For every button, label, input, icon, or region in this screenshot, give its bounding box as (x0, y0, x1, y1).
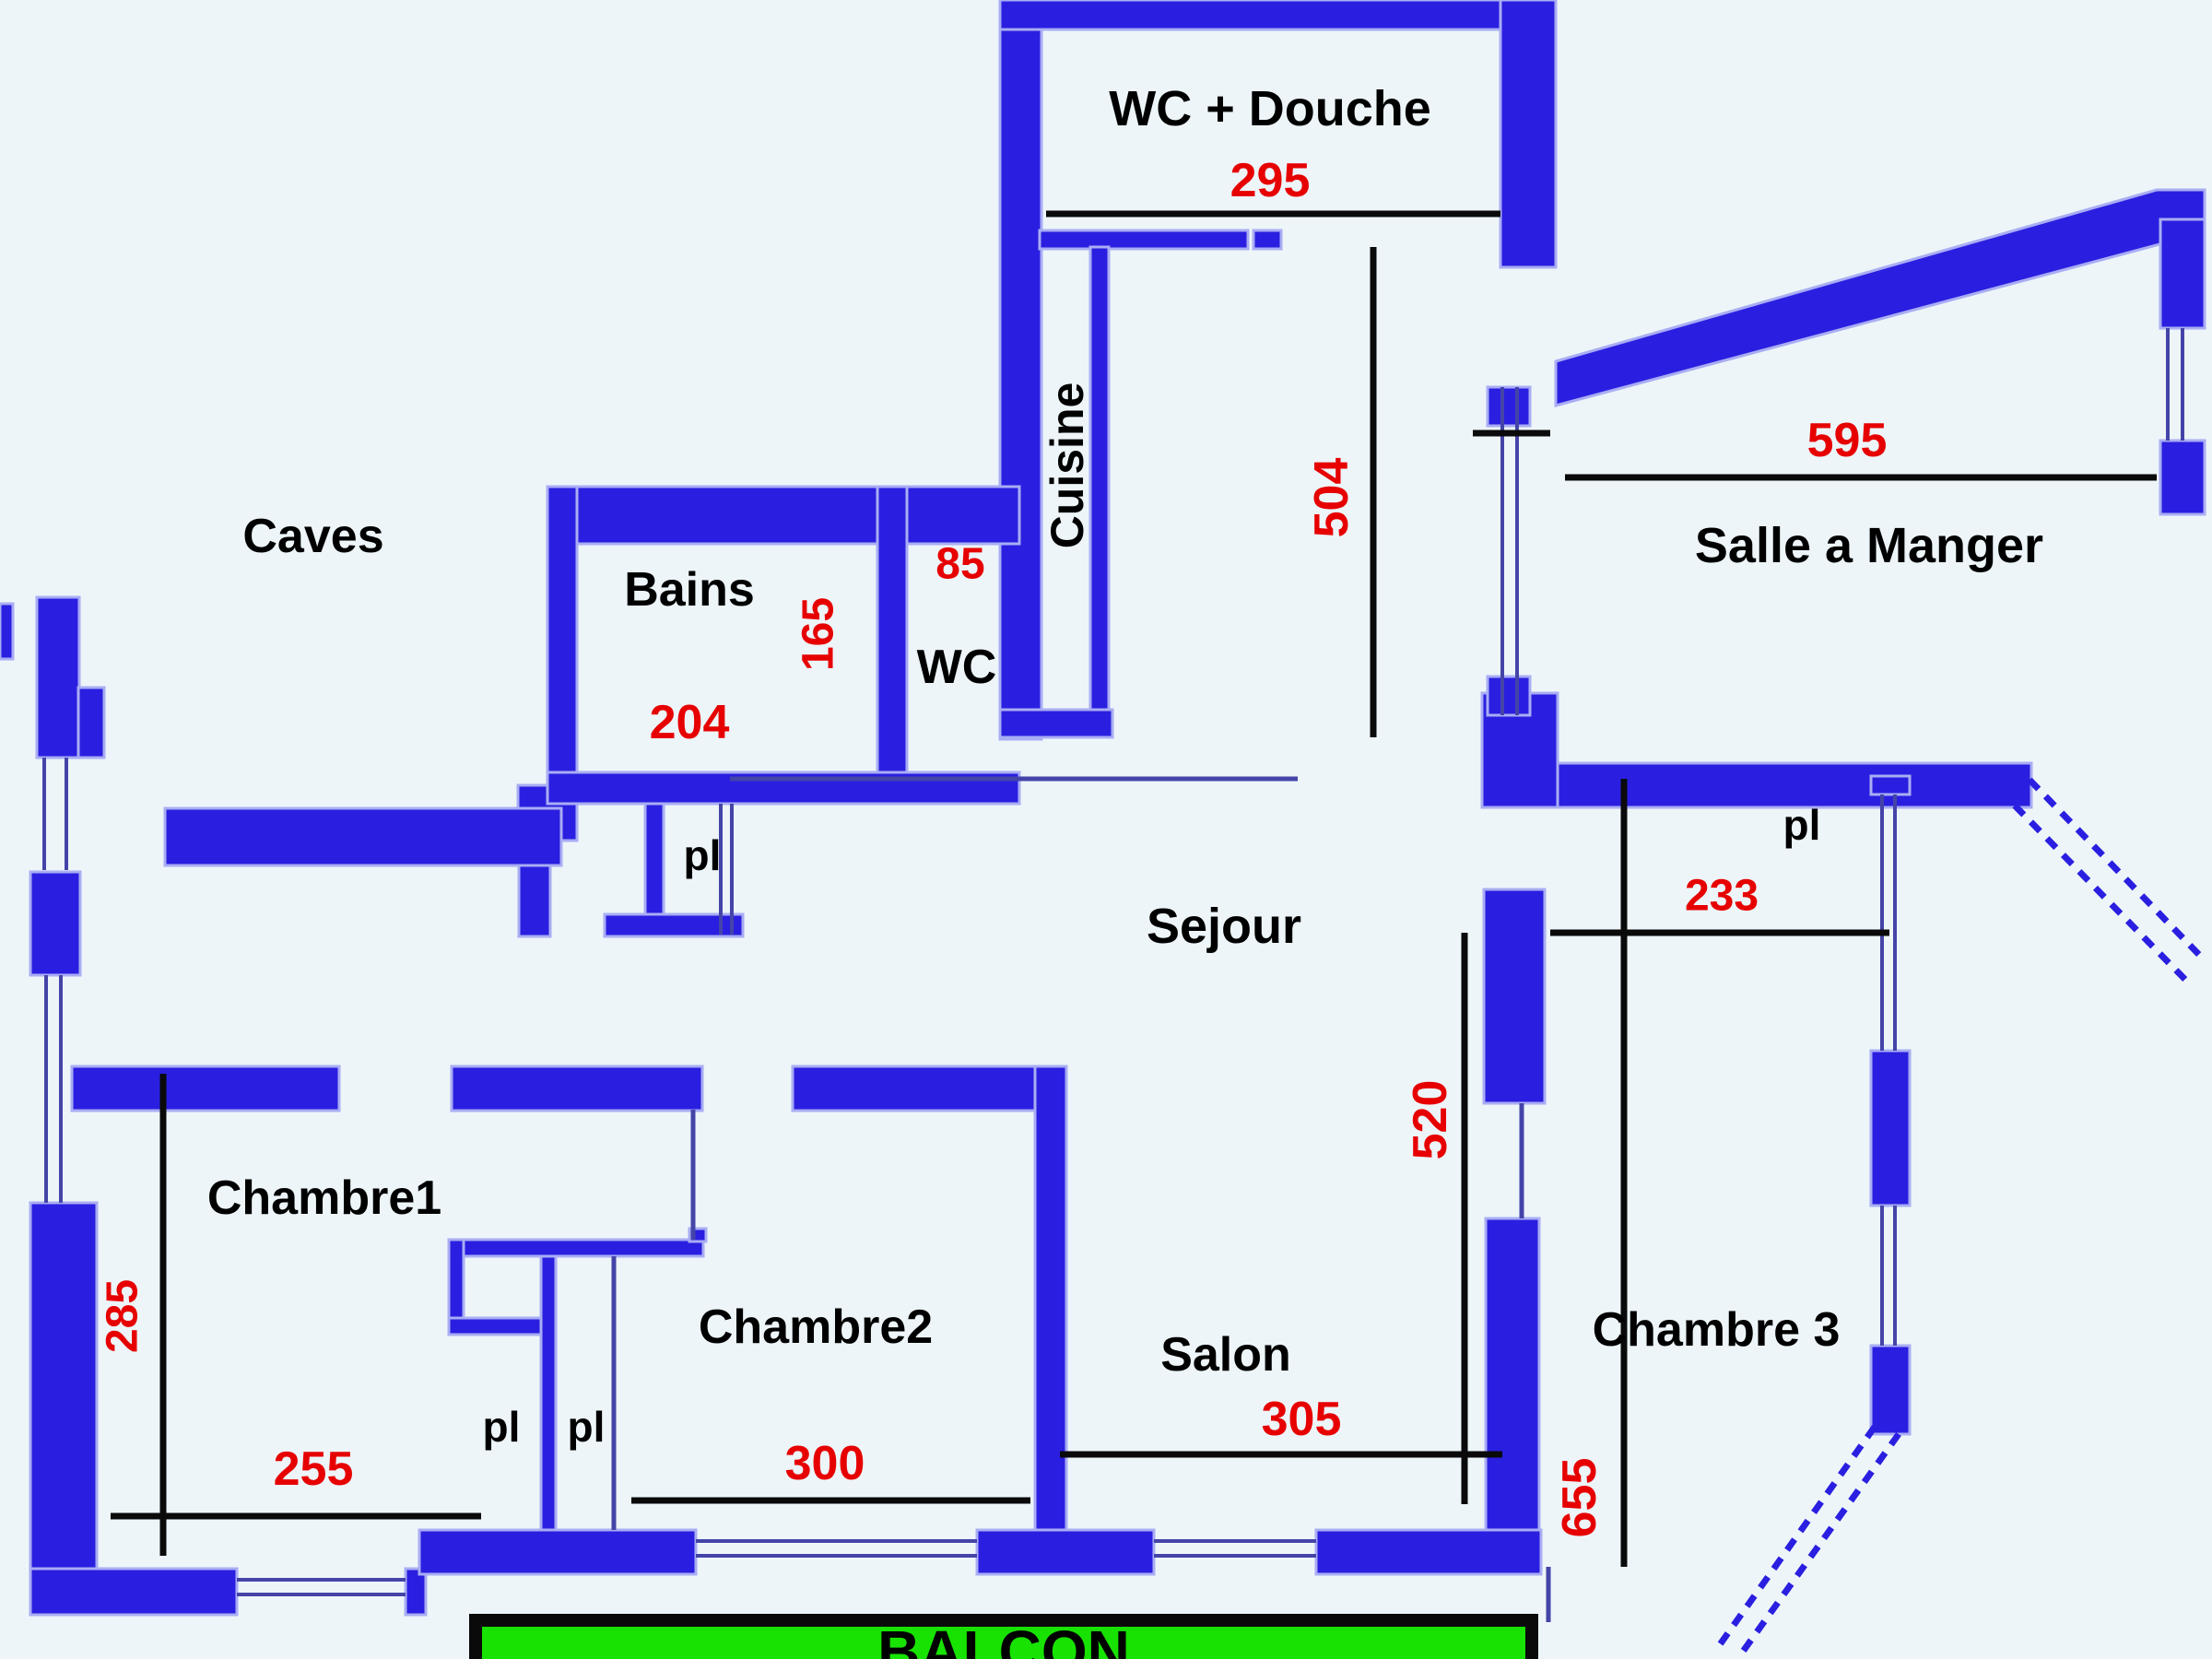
wall-left-nub (78, 688, 104, 758)
wall-bottom-right-seg (1316, 1530, 1541, 1574)
wall-cuisine-right (1090, 247, 1109, 710)
closet-label-pl-2: pl (1783, 801, 1821, 849)
wall-wcdouche-right (1500, 0, 1556, 267)
floor-plan: Caves WC + Douche 295 Cuisine 504 Bains … (0, 0, 2212, 1659)
wall-bottom-mid (977, 1530, 1154, 1574)
wall-bains-wc-divider (877, 487, 907, 783)
dim-595: 595 (1807, 414, 1888, 467)
wall-opening-cap-bottom (1488, 677, 1530, 715)
walls (0, 0, 2205, 1615)
wall-right-block-mid (1871, 1051, 1910, 1206)
wall-bottom-left-1 (30, 1569, 237, 1615)
wall-closet-divider (541, 1256, 556, 1532)
room-label-caves: Caves (242, 510, 383, 563)
door-dashed-salle-a (2030, 780, 2205, 960)
wall-cuisine-left (1000, 0, 1041, 739)
dim-655: 655 (1553, 1458, 1606, 1538)
wall-left-upper (37, 597, 79, 758)
wall-pillar-sejour (1484, 889, 1545, 1103)
room-label-sejour: Sejour (1147, 899, 1301, 954)
dim-300: 300 (785, 1437, 865, 1490)
wall-right-cap (1871, 776, 1910, 794)
dim-295: 295 (1230, 154, 1311, 207)
room-label-balcon: BALCON (877, 1618, 1130, 1659)
wall-closet-bottom (449, 1318, 547, 1335)
wall-closet-top (449, 1240, 703, 1256)
dim-204: 204 (650, 696, 730, 749)
wall-chambre2-top-left (452, 1066, 702, 1111)
closet-label-pl-1: pl (684, 831, 722, 879)
wall-cuisine-bottom (1000, 710, 1112, 737)
closet-label-pl-3: pl (483, 1403, 521, 1451)
wall-right-block-low (1871, 1346, 1910, 1434)
wall-left-mid (30, 872, 80, 975)
door-dashed-salle-b (2015, 806, 2190, 984)
room-label-chambre3: Chambre 3 (1593, 1303, 1841, 1357)
wall-bains-top (547, 487, 1019, 544)
wall-chambre2-top-right (793, 1066, 1037, 1111)
wall-chambre2-salon-divider (1035, 1066, 1066, 1532)
dim-285: 285 (99, 1279, 147, 1353)
wall-bains-left (547, 487, 577, 802)
wall-diagonal-top-right (1556, 190, 2205, 406)
wall-under-wcdouche-right (1253, 230, 1281, 249)
dim-305: 305 (1262, 1393, 1342, 1446)
wall-chambre1-top (72, 1066, 339, 1111)
wall-salle-right-top (2160, 219, 2205, 328)
wall-left-protrusion (165, 808, 561, 865)
wall-chambre3-left (1486, 1218, 1539, 1569)
room-label-salle-a-manger: Salle a Manger (1695, 518, 2043, 573)
room-label-chambre1: Chambre1 (207, 1171, 441, 1225)
dim-504: 504 (1305, 458, 1359, 538)
dim-255: 255 (274, 1442, 354, 1496)
room-label-wc-douche: WC + Douche (1109, 81, 1431, 136)
room-label-wc: WC (917, 641, 997, 694)
floor-plan-canvas: Caves WC + Douche 295 Cuisine 504 Bains … (0, 0, 2212, 1659)
door-dashed-chambre3-b (1716, 1427, 1875, 1650)
dim-520: 520 (1404, 1080, 1457, 1160)
room-label-bains: Bains (624, 563, 755, 617)
room-label-salon: Salon (1160, 1328, 1291, 1382)
wall-edge-nub (0, 604, 13, 659)
dim-85: 85 (935, 540, 984, 589)
wall-top (1000, 0, 1556, 29)
doors-dashed (1716, 780, 2205, 1655)
dim-165: 165 (794, 597, 843, 671)
dim-233: 233 (1685, 872, 1759, 921)
door-dashed-chambre3-a (1740, 1434, 1899, 1655)
wall-opening-cap-top (1488, 387, 1530, 426)
wall-salle-right-mid (2160, 441, 2205, 514)
wall-step-stub (519, 865, 550, 936)
room-label-cuisine: Cuisine (1041, 382, 1093, 549)
closet-label-pl-4: pl (568, 1403, 606, 1451)
wall-under-wcdouche-left (1040, 230, 1248, 249)
wall-bottom-left-2 (419, 1530, 696, 1574)
room-label-chambre2: Chambre2 (699, 1300, 933, 1354)
wall-left-lower (30, 1203, 97, 1615)
